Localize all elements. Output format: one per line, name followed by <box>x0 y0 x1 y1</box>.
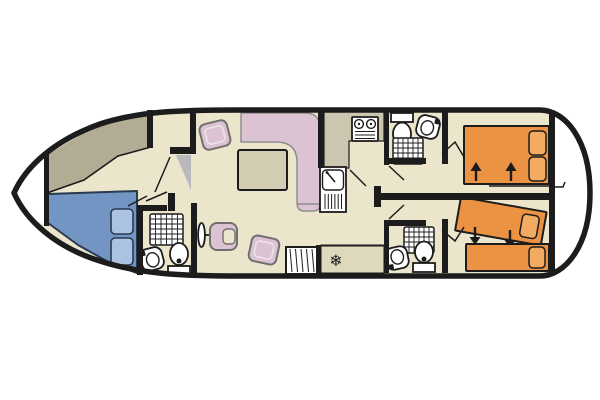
shower-bow <box>150 214 183 245</box>
saloon-table <box>238 150 287 190</box>
boat-floorplan-canvas: ❄ <box>0 0 600 400</box>
toilet-bottom-bathroom <box>413 242 435 273</box>
companionway-stairs <box>286 247 320 274</box>
pillow-aft-top-1 <box>529 131 546 155</box>
toilet-bow <box>168 243 190 275</box>
chair-saloon-top <box>198 119 231 151</box>
fridge-freezer: ❄ <box>321 245 384 273</box>
pillow-bow-1 <box>111 209 133 234</box>
pillow-bow-2 <box>111 238 133 265</box>
boat-floorplan: ❄ <box>0 0 600 400</box>
chair-saloon-bottom <box>248 234 281 265</box>
stove <box>352 117 378 141</box>
freezer-snowflake-icon: ❄ <box>329 251 342 270</box>
pillow-aft-bottom <box>529 247 545 268</box>
helm-seat <box>210 223 237 250</box>
pillow-aft-top-2 <box>529 157 546 181</box>
galley-sink <box>320 167 346 212</box>
